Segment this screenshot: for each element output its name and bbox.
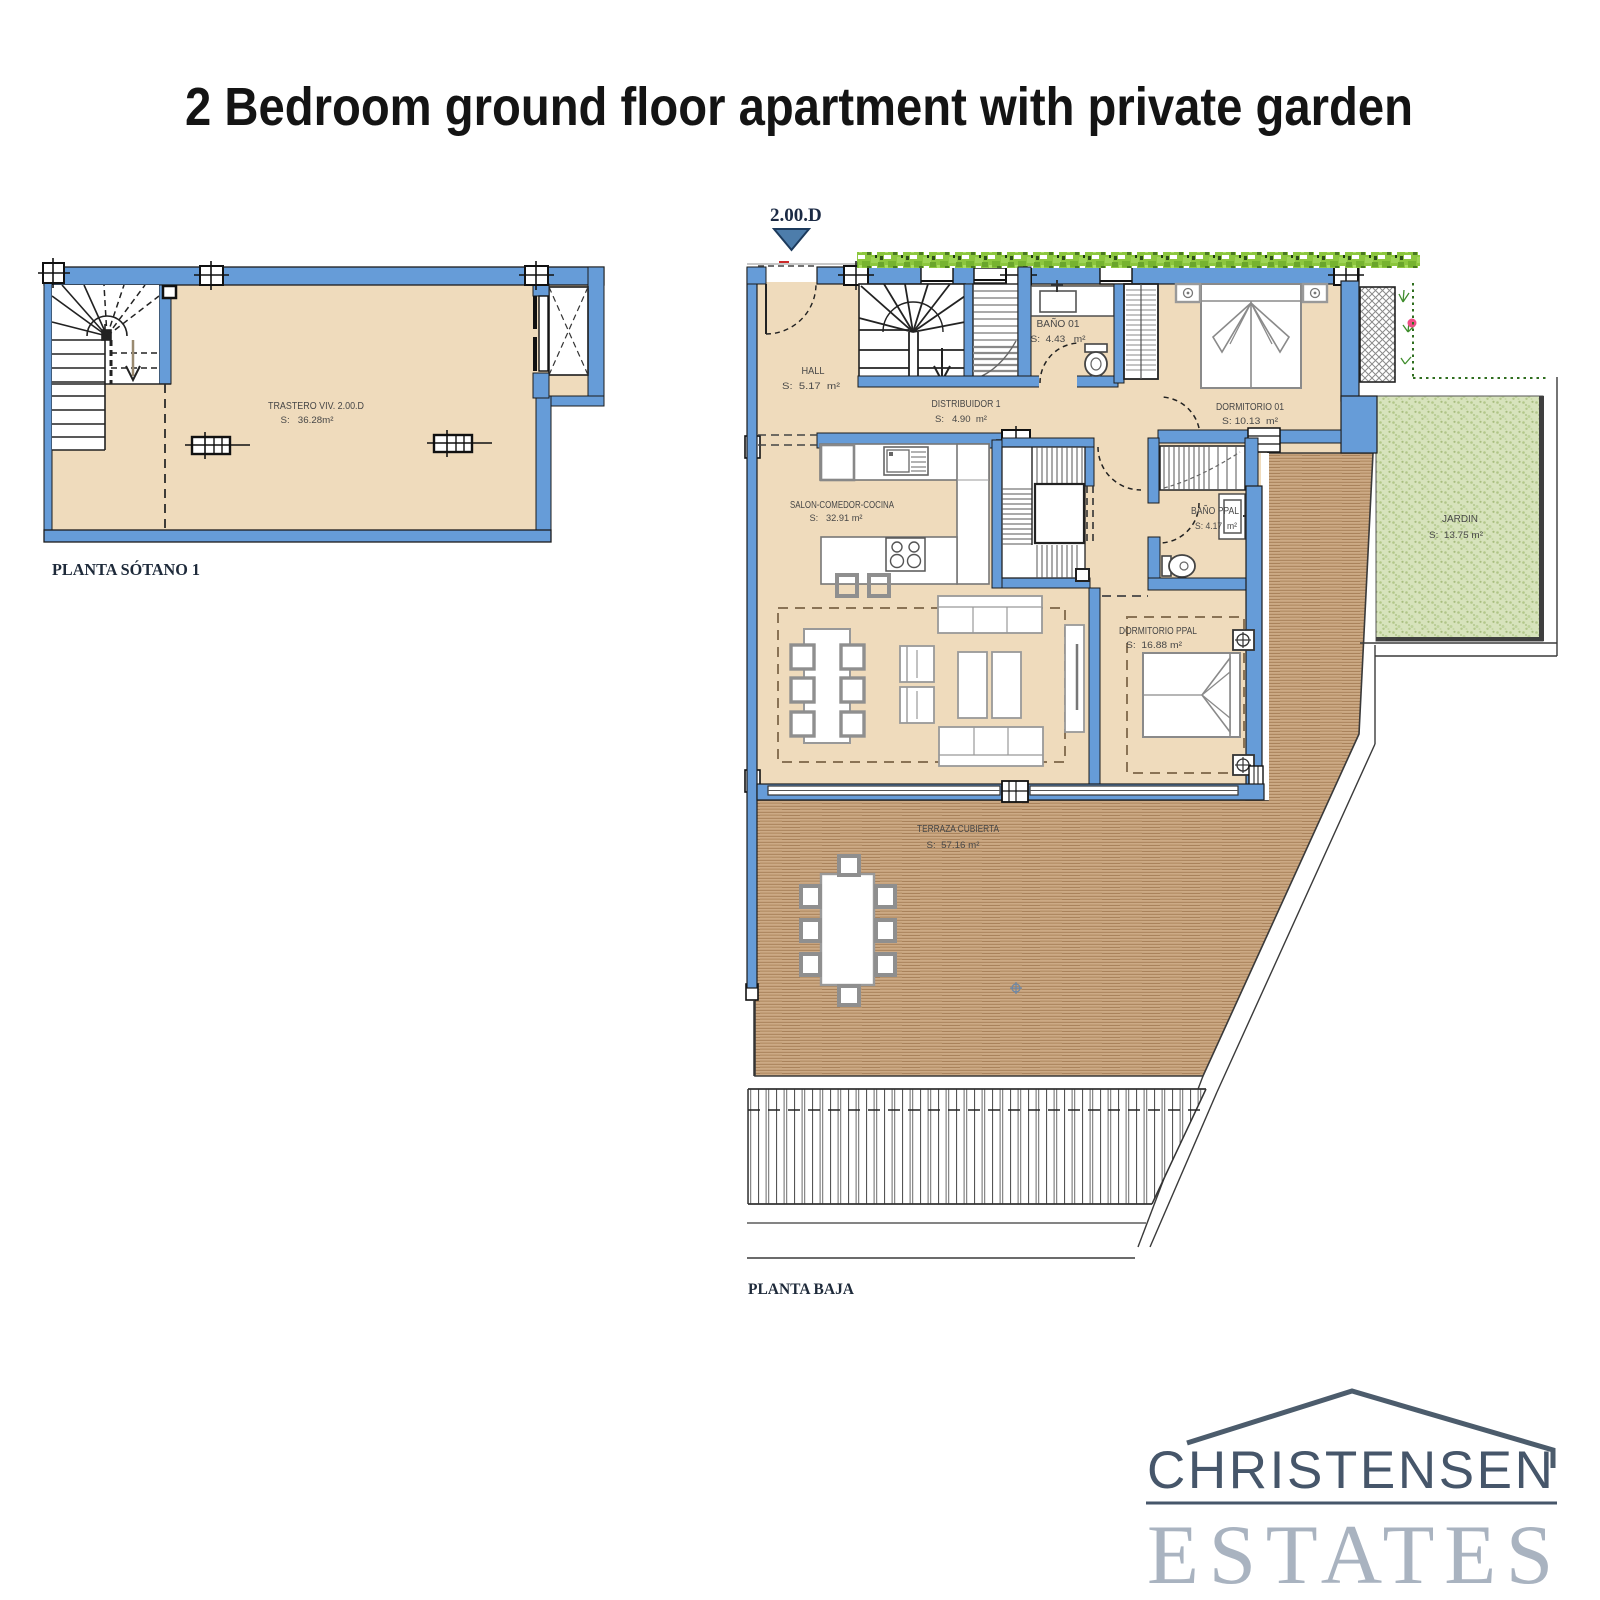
- svg-text:S: 13.75 m²: S: 13.75 m²: [1429, 530, 1483, 541]
- svg-text:S: 36.28m²: S: 36.28m²: [281, 415, 334, 426]
- svg-text:ESTATES: ESTATES: [1147, 1508, 1563, 1600]
- svg-text:TERRAZA CUBIERTA: TERRAZA CUBIERTA: [917, 824, 999, 835]
- svg-text:SALON-COMEDOR-COCINA: SALON-COMEDOR-COCINA: [790, 500, 894, 511]
- svg-text:S: 32.91 m²: S: 32.91 m²: [810, 513, 863, 524]
- svg-text:DORMITORIO 01: DORMITORIO 01: [1216, 402, 1284, 413]
- svg-text:S: 57.16 m²: S: 57.16 m²: [927, 840, 980, 851]
- svg-text:CHRISTENSEN: CHRISTENSEN: [1147, 1441, 1555, 1500]
- svg-text:DISTRIBUIDOR 1: DISTRIBUIDOR 1: [932, 399, 1001, 410]
- svg-text:JARDIN: JARDIN: [1442, 514, 1478, 525]
- svg-text:S: 10.13 m²: S: 10.13 m²: [1222, 416, 1278, 427]
- svg-text:2 Bedroom ground floor apartme: 2 Bedroom ground floor apartment with pr…: [185, 77, 1413, 137]
- svg-text:BAÑO PPAL: BAÑO PPAL: [1191, 504, 1239, 517]
- svg-text:DORMITORIO PPAL: DORMITORIO PPAL: [1119, 626, 1197, 637]
- svg-text:PLANTA BAJA: PLANTA BAJA: [748, 1281, 854, 1298]
- svg-text:TRASTERO VIV. 2.00.D: TRASTERO VIV. 2.00.D: [268, 401, 364, 412]
- svg-text:PLANTA SÓTANO 1: PLANTA SÓTANO 1: [52, 560, 200, 579]
- svg-text:HALL: HALL: [802, 366, 825, 377]
- svg-text:S: 5.17 m²: S: 5.17 m²: [782, 381, 840, 392]
- svg-text:S: 16.88 m²: S: 16.88 m²: [1126, 640, 1182, 651]
- svg-text:2.00.D: 2.00.D: [770, 205, 822, 226]
- svg-text:S: 4.90 m²: S: 4.90 m²: [935, 414, 987, 425]
- svg-text:S: 4.17 m²: S: 4.17 m²: [1195, 521, 1237, 532]
- svg-text:S: 4.43 m²: S: 4.43 m²: [1031, 334, 1086, 345]
- svg-text:BAÑO 01: BAÑO 01: [1037, 317, 1080, 330]
